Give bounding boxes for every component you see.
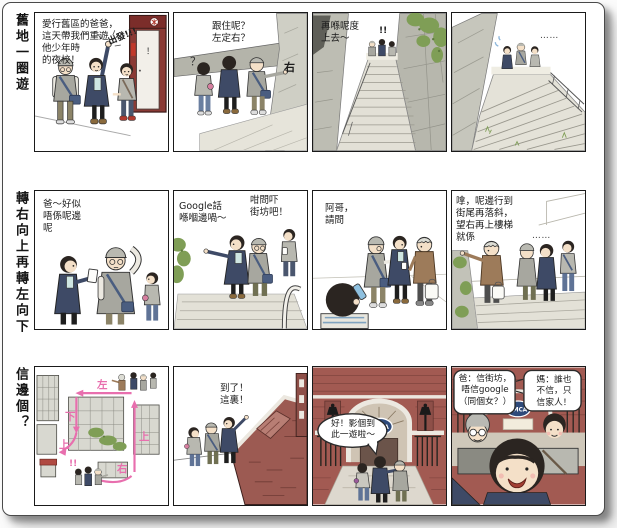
caption-up-stairs: 再喺呢度 上去～ bbox=[321, 21, 359, 45]
caption-arrived: 到了！ 這裏！ bbox=[220, 383, 249, 407]
excite-mark: ！ bbox=[146, 45, 155, 57]
locals-map-figures bbox=[112, 372, 156, 390]
brick-staircase bbox=[231, 397, 307, 504]
caption-setting-off: 愛行舊區的爸爸， 這天帶我們重遊 他少年時 的夜校！ bbox=[42, 19, 118, 68]
panel-up-the-stairs: 再喺呢度 上去～ !! bbox=[312, 12, 447, 152]
caption-not-this-way: 爸～好似 唔係呢邊 呢 bbox=[43, 199, 81, 235]
mom-drinking-figure bbox=[321, 283, 368, 328]
dad-scratch-figure bbox=[97, 248, 138, 325]
bubble-dad: 爸：信街坊， 唔信google （同個女？） bbox=[456, 374, 514, 408]
route-sfx: !! bbox=[69, 459, 77, 469]
route-label-right: 右 bbox=[117, 461, 128, 476]
bubble-mom: 媽：誰也 不信，只 信家人！ bbox=[527, 375, 581, 409]
dad-figure bbox=[53, 58, 81, 124]
route-label-left: 左 bbox=[97, 377, 108, 392]
route-label-up2: 上 bbox=[59, 437, 70, 452]
elderly-local-figure bbox=[410, 237, 439, 305]
row2-title: 轉右向上再轉左向下 bbox=[10, 191, 30, 335]
panel-ymca-gate: YMCA bbox=[312, 366, 447, 506]
caption-ask-locals: 咁問吓 街坊吧！ bbox=[250, 195, 288, 219]
direction-right-label: 右 bbox=[284, 61, 295, 75]
caption-google: Google話 喺嗰邊喎～ bbox=[179, 201, 227, 225]
panel-setting-off: 愛行舊區的爸爸， 這天帶我們重遊 他少年時 的夜校！ 出發!!! ！ bbox=[34, 12, 169, 152]
daughter-figure bbox=[388, 236, 411, 303]
bubble-photo: 好！影個到 此一遊啦～ bbox=[323, 419, 383, 442]
mom-watching-figure bbox=[142, 272, 160, 320]
comic-page: 舊地一圈遊 轉右向上再轉左向下 信邊個？ bbox=[2, 2, 605, 516]
foliage bbox=[174, 238, 191, 283]
panel-family-selfie: YMCA bbox=[451, 366, 586, 506]
listening-dots: ⋯⋯ bbox=[532, 233, 551, 243]
banner bbox=[503, 419, 533, 430]
family-small-figures bbox=[369, 39, 396, 56]
panel-ask-a-local: 阿哥， 請問 bbox=[312, 190, 447, 330]
route-label-down: 下 bbox=[65, 409, 76, 424]
row3-title: 信邊個？ bbox=[10, 367, 30, 431]
question-mark: ？ bbox=[190, 53, 201, 69]
panel-google-says: Google話 喺嗰邊喎～ 咁問吓 街坊吧！ bbox=[173, 190, 308, 330]
dad-figure bbox=[248, 238, 273, 296]
panel-arrived: 到了！ 這裏！ bbox=[173, 366, 308, 506]
mom-phone-figure bbox=[281, 229, 297, 276]
daughter-pointing-figure bbox=[204, 235, 249, 298]
long-stairs-art bbox=[452, 13, 585, 151]
caption-which-way: 跟住呢？ 左定右？ bbox=[212, 21, 250, 45]
panel-not-this-way: 爸～好似 唔係呢邊 呢 bbox=[34, 190, 169, 330]
row1-title: 舊地一圈遊 bbox=[10, 13, 30, 93]
panel-route-map: 左 下 上 右 上 !! bbox=[34, 366, 169, 506]
panel-long-stairs: ⋯⋯ bbox=[451, 12, 586, 152]
silence-dots: ⋯⋯ bbox=[540, 33, 559, 43]
red-roof-building bbox=[40, 459, 57, 477]
caption-excuse-me: 阿哥， 請問 bbox=[325, 203, 354, 227]
panel-local-directions: 嗱，呢邊行到 街尾再落斜， 望右再上樓梯 就係 ⋯⋯ bbox=[451, 190, 586, 330]
door-sign-badge-icon bbox=[150, 18, 158, 26]
sfx-up-stairs: !! bbox=[379, 26, 387, 36]
caption-directions: 嗱，呢邊行到 街尾再落斜， 望右再上樓梯 就係 bbox=[456, 196, 513, 245]
brick-building-sliver bbox=[296, 373, 307, 436]
family-small-figures bbox=[495, 36, 540, 69]
panel-which-way: 跟住呢？ 左定右？ ？ 右 bbox=[173, 12, 308, 152]
family-listening-figures bbox=[517, 241, 576, 301]
route-label-up: 上 bbox=[139, 429, 150, 444]
daughter-phone-figure bbox=[55, 256, 98, 324]
